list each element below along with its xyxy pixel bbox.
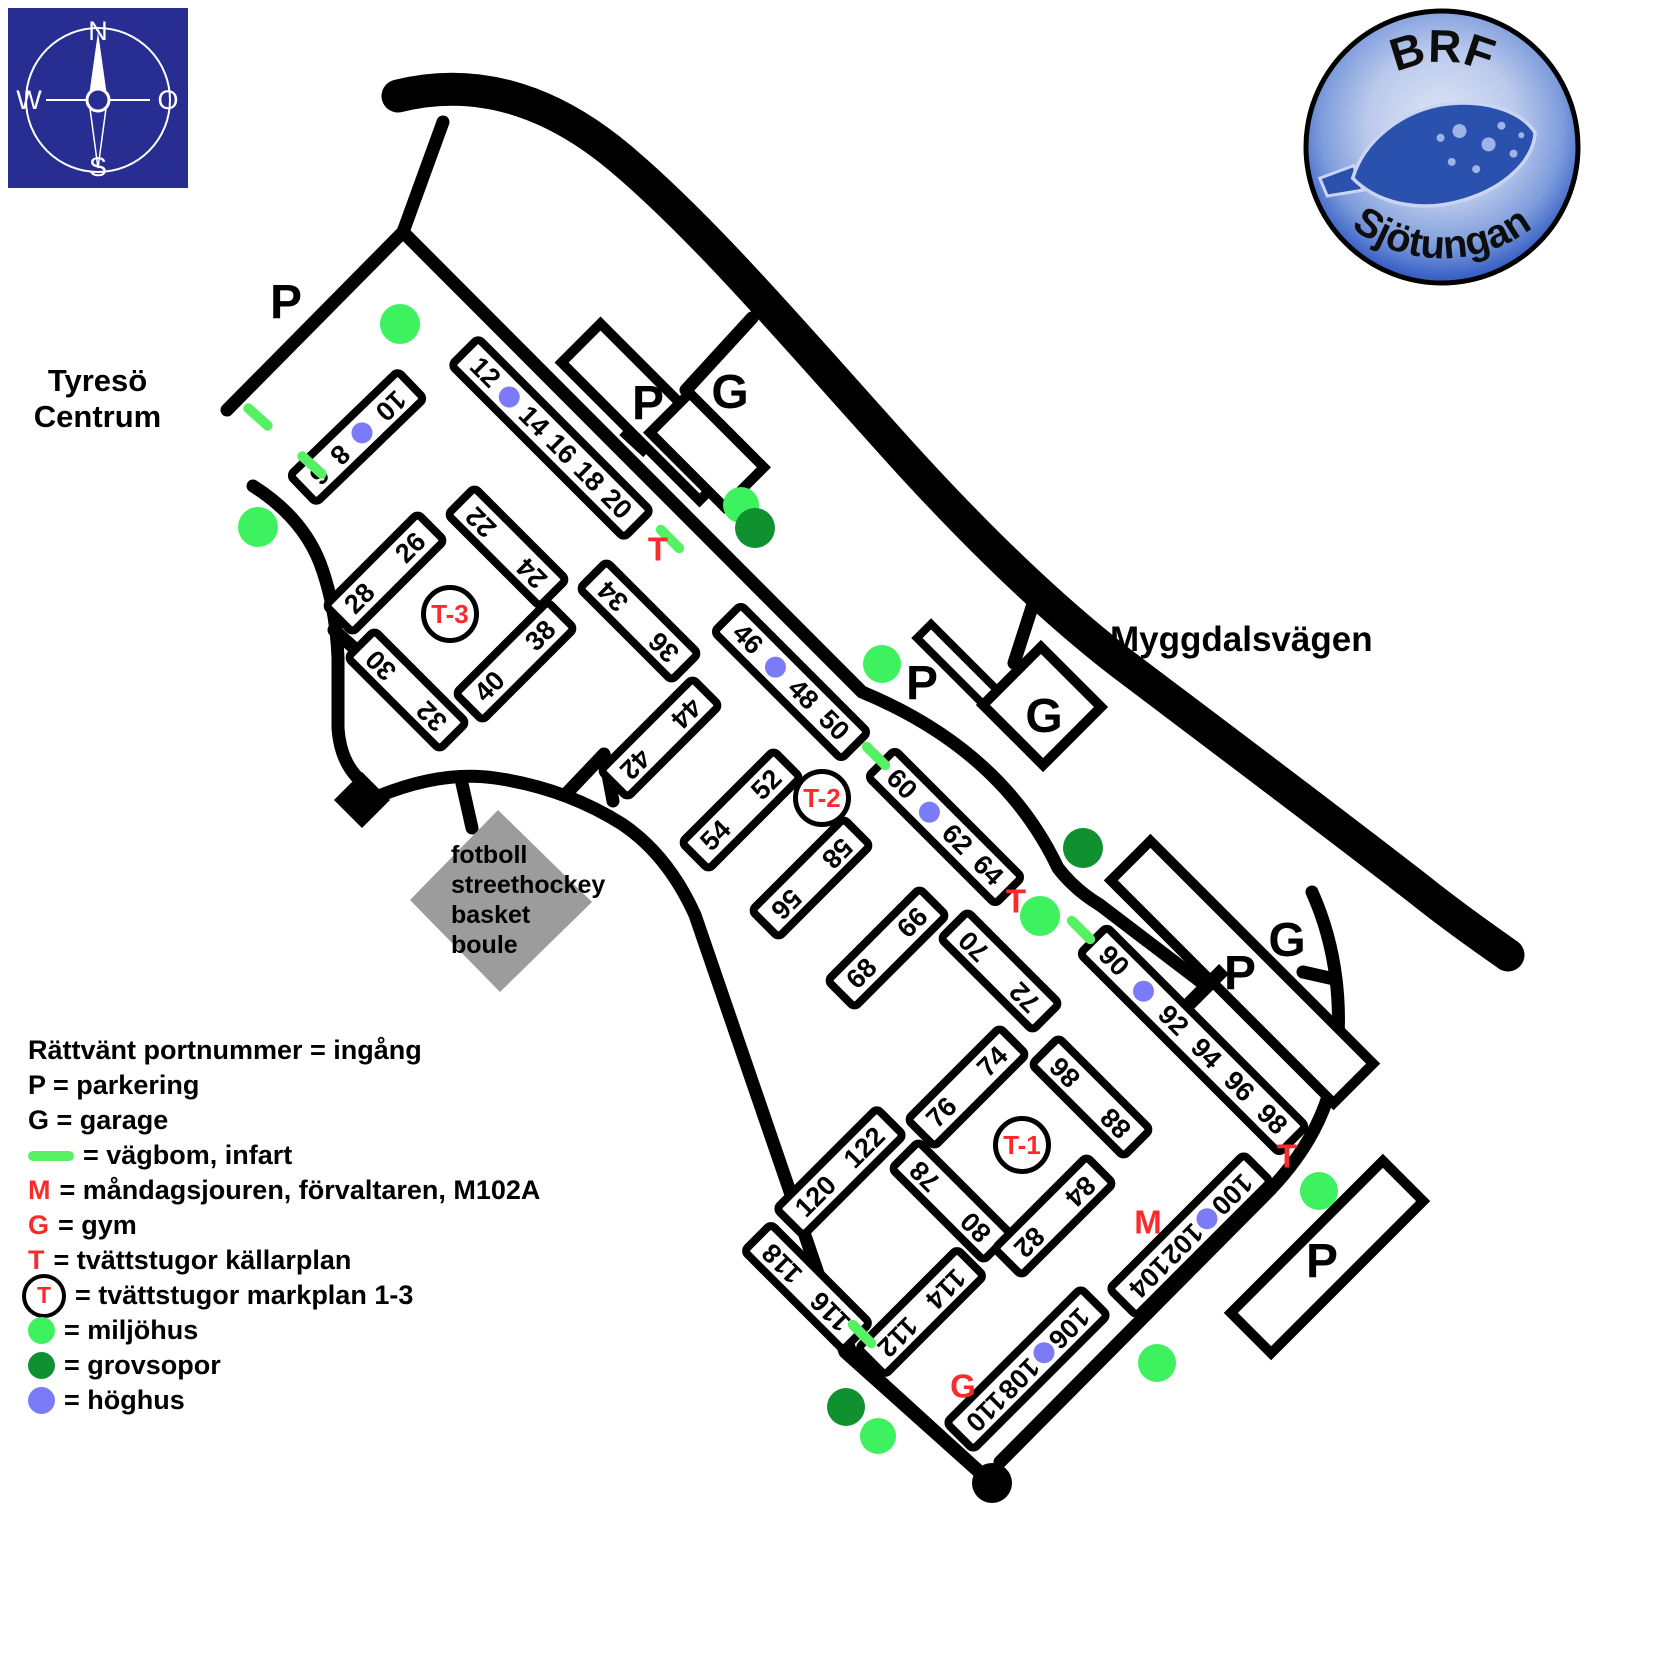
road-northwest [227,122,443,410]
legend-row: T= tvättstugor källarplan [28,1243,540,1278]
port-number: 8 [324,439,354,469]
grovsopor-dot [1063,828,1103,868]
legend-row: T= tvättstugor markplan 1-3 [28,1278,540,1313]
map-letter-t-red: T [1277,1140,1297,1173]
port-number: 42 [614,743,654,783]
port-number: 40 [469,666,509,706]
compass-o: O [157,85,178,115]
map-letter-p-black: P [1306,1238,1338,1286]
legend-text: = höghus [64,1385,185,1416]
legend-text: = tvättstugor markplan 1-3 [75,1280,413,1311]
port-number: 66 [892,902,932,942]
map-letter-p-black: P [632,380,664,428]
port-number: 80 [956,1206,996,1246]
miljohus-dot [1300,1172,1338,1210]
legend-letter-g: G [28,1210,49,1241]
legend-text: = gym [58,1210,137,1241]
legend: Rättvänt portnummer = ingångP = parkerin… [28,1033,540,1418]
port-number: 12 [465,352,505,392]
sport-activity: fotboll [451,840,605,870]
legend-letter-m: M [28,1175,51,1206]
miljohus-dot [860,1418,896,1454]
brf-sjotungan-logo: BRF Sjötungan [1300,4,1585,294]
port-number: 96 [1219,1066,1259,1106]
map-letter-t-red: T [648,533,668,566]
sport-field-label: fotbollstreethockeybasketboule [451,840,605,960]
port-number: 94 [1186,1033,1226,1073]
map-letter-p-black: P [1224,950,1256,998]
miljohus-icon [28,1317,55,1344]
compass-n: N [88,16,108,46]
port-number: 26 [390,527,430,567]
grovsopor-icon [28,1352,55,1379]
legend-text: = måndagsjouren, förvaltaren, M102A [60,1175,541,1206]
area-label-line1: Tyresö [5,363,190,399]
hoghus-dot [915,797,945,827]
port-number: 70 [954,925,994,965]
compass-hub [87,89,109,111]
port-number: 38 [520,615,560,655]
port-number: 20 [597,484,637,524]
legend-row: M= måndagsjouren, förvaltaren, M102A [28,1173,540,1208]
map-letter-m-red: M [1134,1206,1162,1239]
laundry-circle-t-3: T-3 [421,585,479,643]
grovsopor-dot [735,508,775,548]
legend-row: G = garage [28,1103,540,1138]
port-number: 58 [816,832,856,872]
laundry-circle-t-2: T-2 [793,769,851,827]
vagbom-legend-icon [28,1151,74,1161]
port-number: 62 [937,819,977,859]
legend-text: = vägbom, infart [83,1140,292,1171]
legend-row: Rättvänt portnummer = ingång [28,1033,540,1068]
legend-text: G = garage [28,1105,168,1136]
port-number: 32 [412,695,452,735]
road-junction-dot [972,1463,1012,1503]
legend-row: P = parkering [28,1068,540,1103]
legend-letter-t: T [28,1245,45,1276]
compass-rose: N O S W [8,8,188,188]
port-number: 82 [1008,1221,1048,1261]
miljohus-dot [863,645,901,683]
port-number: 44 [665,692,705,732]
port-number: 24 [512,552,552,592]
port-number: 86 [1045,1051,1085,1091]
port-number: 78 [905,1155,945,1195]
port-number: 98 [1252,1099,1292,1139]
port-number: 34 [593,575,633,615]
sport-activity: basket [451,900,605,930]
road-stub [461,779,472,828]
port-number: 18 [569,456,609,496]
port-number: 52 [746,764,786,804]
map-letter-g-black: G [1025,693,1062,741]
legend-row: = grovsopor [28,1348,540,1383]
legend-row: = höghus [28,1383,540,1418]
port-number: 10 [370,385,410,425]
hoghus-dot [1129,976,1159,1006]
street-label-myggdalsvagen: Myggdalsvägen [1110,620,1373,660]
sport-activity: boule [451,930,605,960]
legend-text: P = parkering [28,1070,199,1101]
hoghus-icon [28,1387,55,1414]
port-number: 90 [1094,941,1134,981]
port-number: 92 [1153,1000,1193,1040]
port-number: 76 [921,1092,961,1132]
port-number: 84 [1059,1170,1099,1210]
port-number: 28 [339,578,379,618]
port-number: 64 [968,850,1008,890]
area-label-tyreso-centrum: Tyresö Centrum [5,363,190,435]
legend-row: G= gym [28,1208,540,1243]
port-number: 74 [972,1041,1012,1081]
grovsopor-dot [827,1388,865,1426]
port-number: 72 [1005,976,1045,1016]
port-number: 22 [461,501,501,541]
port-number: 56 [765,883,805,923]
port-number: 68 [841,953,881,993]
compass-w: W [16,85,42,115]
compass-s: S [89,152,107,182]
laundry-circle-t-1: T-1 [993,1116,1051,1174]
legend-row: = vägbom, infart [28,1138,540,1173]
map-letter-t-red: T [1006,885,1026,918]
port-number: 30 [361,644,401,684]
map-canvas: fotbollstreethockeybasketboule 681012141… [0,0,1667,1667]
port-number: 48 [783,674,823,714]
miljohus-dot [1138,1344,1176,1382]
port-number: 16 [541,428,581,468]
hoghus-dot [761,652,791,682]
map-letter-g-red: G [950,1370,976,1403]
legend-text: = miljöhus [64,1315,198,1346]
map-letter-g-black: G [1268,917,1305,965]
port-number: 54 [695,815,735,855]
road-end-diamond [334,772,390,828]
map-letter-p-black: P [270,279,302,327]
laundry-groundfloor-icon: T [22,1274,66,1318]
hoghus-dot [347,417,377,447]
legend-row: = miljöhus [28,1313,540,1348]
miljohus-dot [238,507,278,547]
port-number: 46 [728,619,768,659]
port-number: 36 [644,626,684,666]
sport-activity: streethockey [451,870,605,900]
legend-text: Rättvänt portnummer = ingång [28,1035,422,1066]
map-letter-g-black: G [711,369,748,417]
port-number: 88 [1096,1102,1136,1142]
parking-tick-right [1303,972,1334,979]
hoghus-dot [495,382,525,412]
legend-text: = tvättstugor källarplan [54,1245,352,1276]
port-number: 14 [514,401,554,441]
area-label-line2: Centrum [5,399,190,435]
port-number: 50 [814,705,854,745]
miljohus-dot [380,304,420,344]
port-number: 60 [882,764,922,804]
map-letter-p-black: P [906,660,938,708]
legend-text: = grovsopor [64,1350,221,1381]
